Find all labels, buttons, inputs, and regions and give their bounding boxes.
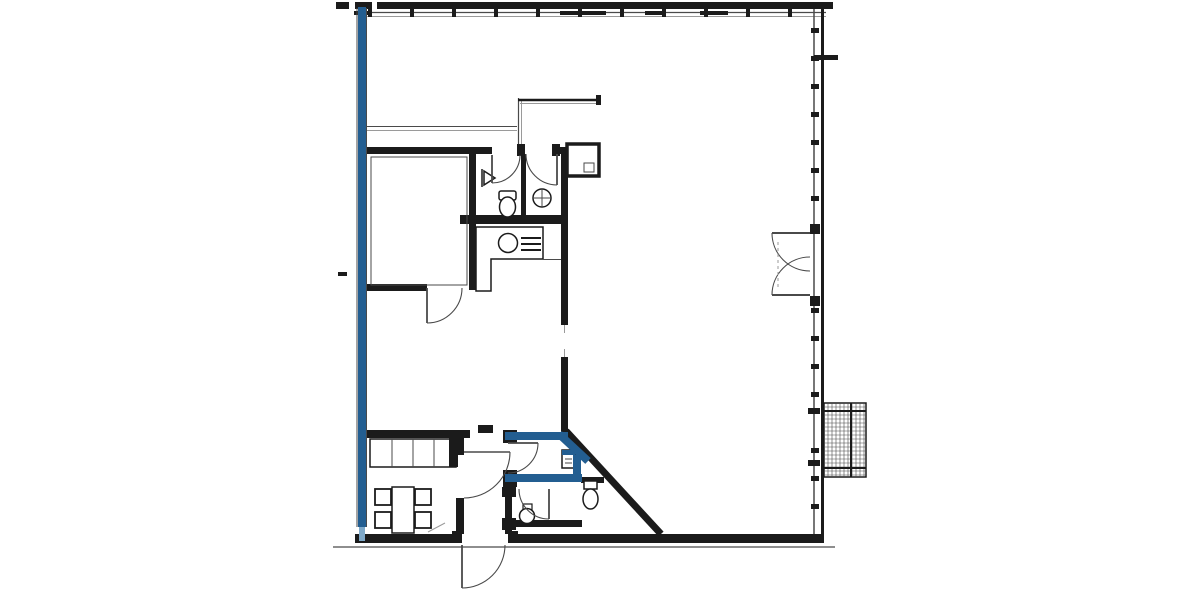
top-wall-mullion-tick [410, 9, 414, 17]
diagonal-wall [566, 431, 661, 534]
right-wall-mullion-tick [811, 196, 819, 201]
top-wall-dark-segment [560, 11, 606, 15]
leftroom-door-arc [427, 288, 462, 323]
right-wall-mullion-tick [811, 84, 819, 89]
floor-plan-page [0, 0, 1200, 600]
dining-chair [375, 512, 391, 528]
wc-left-door-arc [492, 155, 520, 183]
right-wall-mullion-tick [811, 504, 819, 509]
top-wall-mullion-tick [452, 9, 456, 17]
bathroom-partition [521, 154, 526, 216]
toilet-bowl [500, 197, 516, 217]
right-wall-mullion-tick [811, 112, 819, 117]
right-wall-extended-tick [814, 55, 838, 60]
floor-plan-canvas [0, 0, 1200, 600]
bottom-exterior-wall-right [508, 534, 822, 543]
blue-exterior-wall-left [358, 7, 366, 527]
top-wall-mullion-tick [704, 9, 708, 17]
bathroom-door-arc [526, 154, 557, 185]
right-wall-mullion-tick [811, 336, 819, 341]
entry-door-arc [462, 545, 505, 588]
right-wall-mullion-tick [811, 392, 819, 397]
blue-exterior-wall-tail [359, 527, 365, 541]
right-wall-mullion-tick [811, 476, 819, 481]
french-doorframe-bottom [810, 296, 820, 306]
top-wall-mullion-tick [620, 9, 624, 17]
dining-chair [415, 512, 431, 528]
top-wall-mullion-tick [536, 9, 540, 17]
top-wall-dark-segment [645, 11, 663, 15]
wc-handbasin-blue-cap [562, 450, 575, 455]
right-wall-mullion-tick [811, 448, 819, 453]
center-wall-lower [561, 357, 568, 433]
nook-partition-endcap [596, 95, 601, 105]
top-wall-mullion-tick [494, 9, 498, 17]
sink2-bowl [520, 509, 535, 524]
top-exterior-wall-segment [377, 2, 833, 9]
blue-wc-door-arc [508, 443, 538, 473]
vestibule-wall-stub [478, 425, 493, 433]
balcony-anchor-tick-b [808, 460, 820, 466]
duct-shaft-inner [584, 163, 594, 172]
dining-table [392, 487, 414, 533]
dining-right-wall-lower [456, 498, 464, 534]
dining-counter-end-block [449, 438, 458, 467]
balcony-anchor-tick-a [808, 408, 820, 414]
right-wall-mullion-tick [811, 140, 819, 145]
top-exterior-wall-segment [336, 2, 349, 9]
wc2-bottom-wall [505, 520, 582, 527]
toilet2-tank [584, 481, 597, 489]
kitchen-sink [499, 234, 518, 253]
top-wall-mullion-tick [662, 9, 666, 17]
dining-chair [415, 489, 431, 505]
wc2-doorframe-top [502, 487, 516, 497]
dining-top-wall [366, 430, 470, 438]
dining-chair [375, 489, 391, 505]
blue-wc-bottom-wall [505, 474, 582, 482]
right-wall-mullion-tick [811, 168, 819, 173]
kitchen-top-wall [460, 215, 568, 224]
bottom-exterior-wall-left [355, 534, 462, 543]
left-room-inner-outline [371, 157, 467, 285]
top-wall-mullion-tick [746, 9, 750, 17]
top-wall-mullion-tick [788, 9, 792, 17]
left-exterior-dash [338, 272, 347, 276]
right-wall-mullion-tick [811, 364, 819, 369]
top-wall-mullion-tick [578, 9, 582, 17]
right-wall-mullion-tick [811, 308, 819, 313]
french-door-arc-top [772, 233, 810, 271]
right-wall-mullion-tick [811, 28, 819, 33]
french-doorframe-top [810, 224, 820, 234]
toilet2-bowl [583, 489, 598, 509]
entry-doorframe-left [452, 531, 462, 543]
